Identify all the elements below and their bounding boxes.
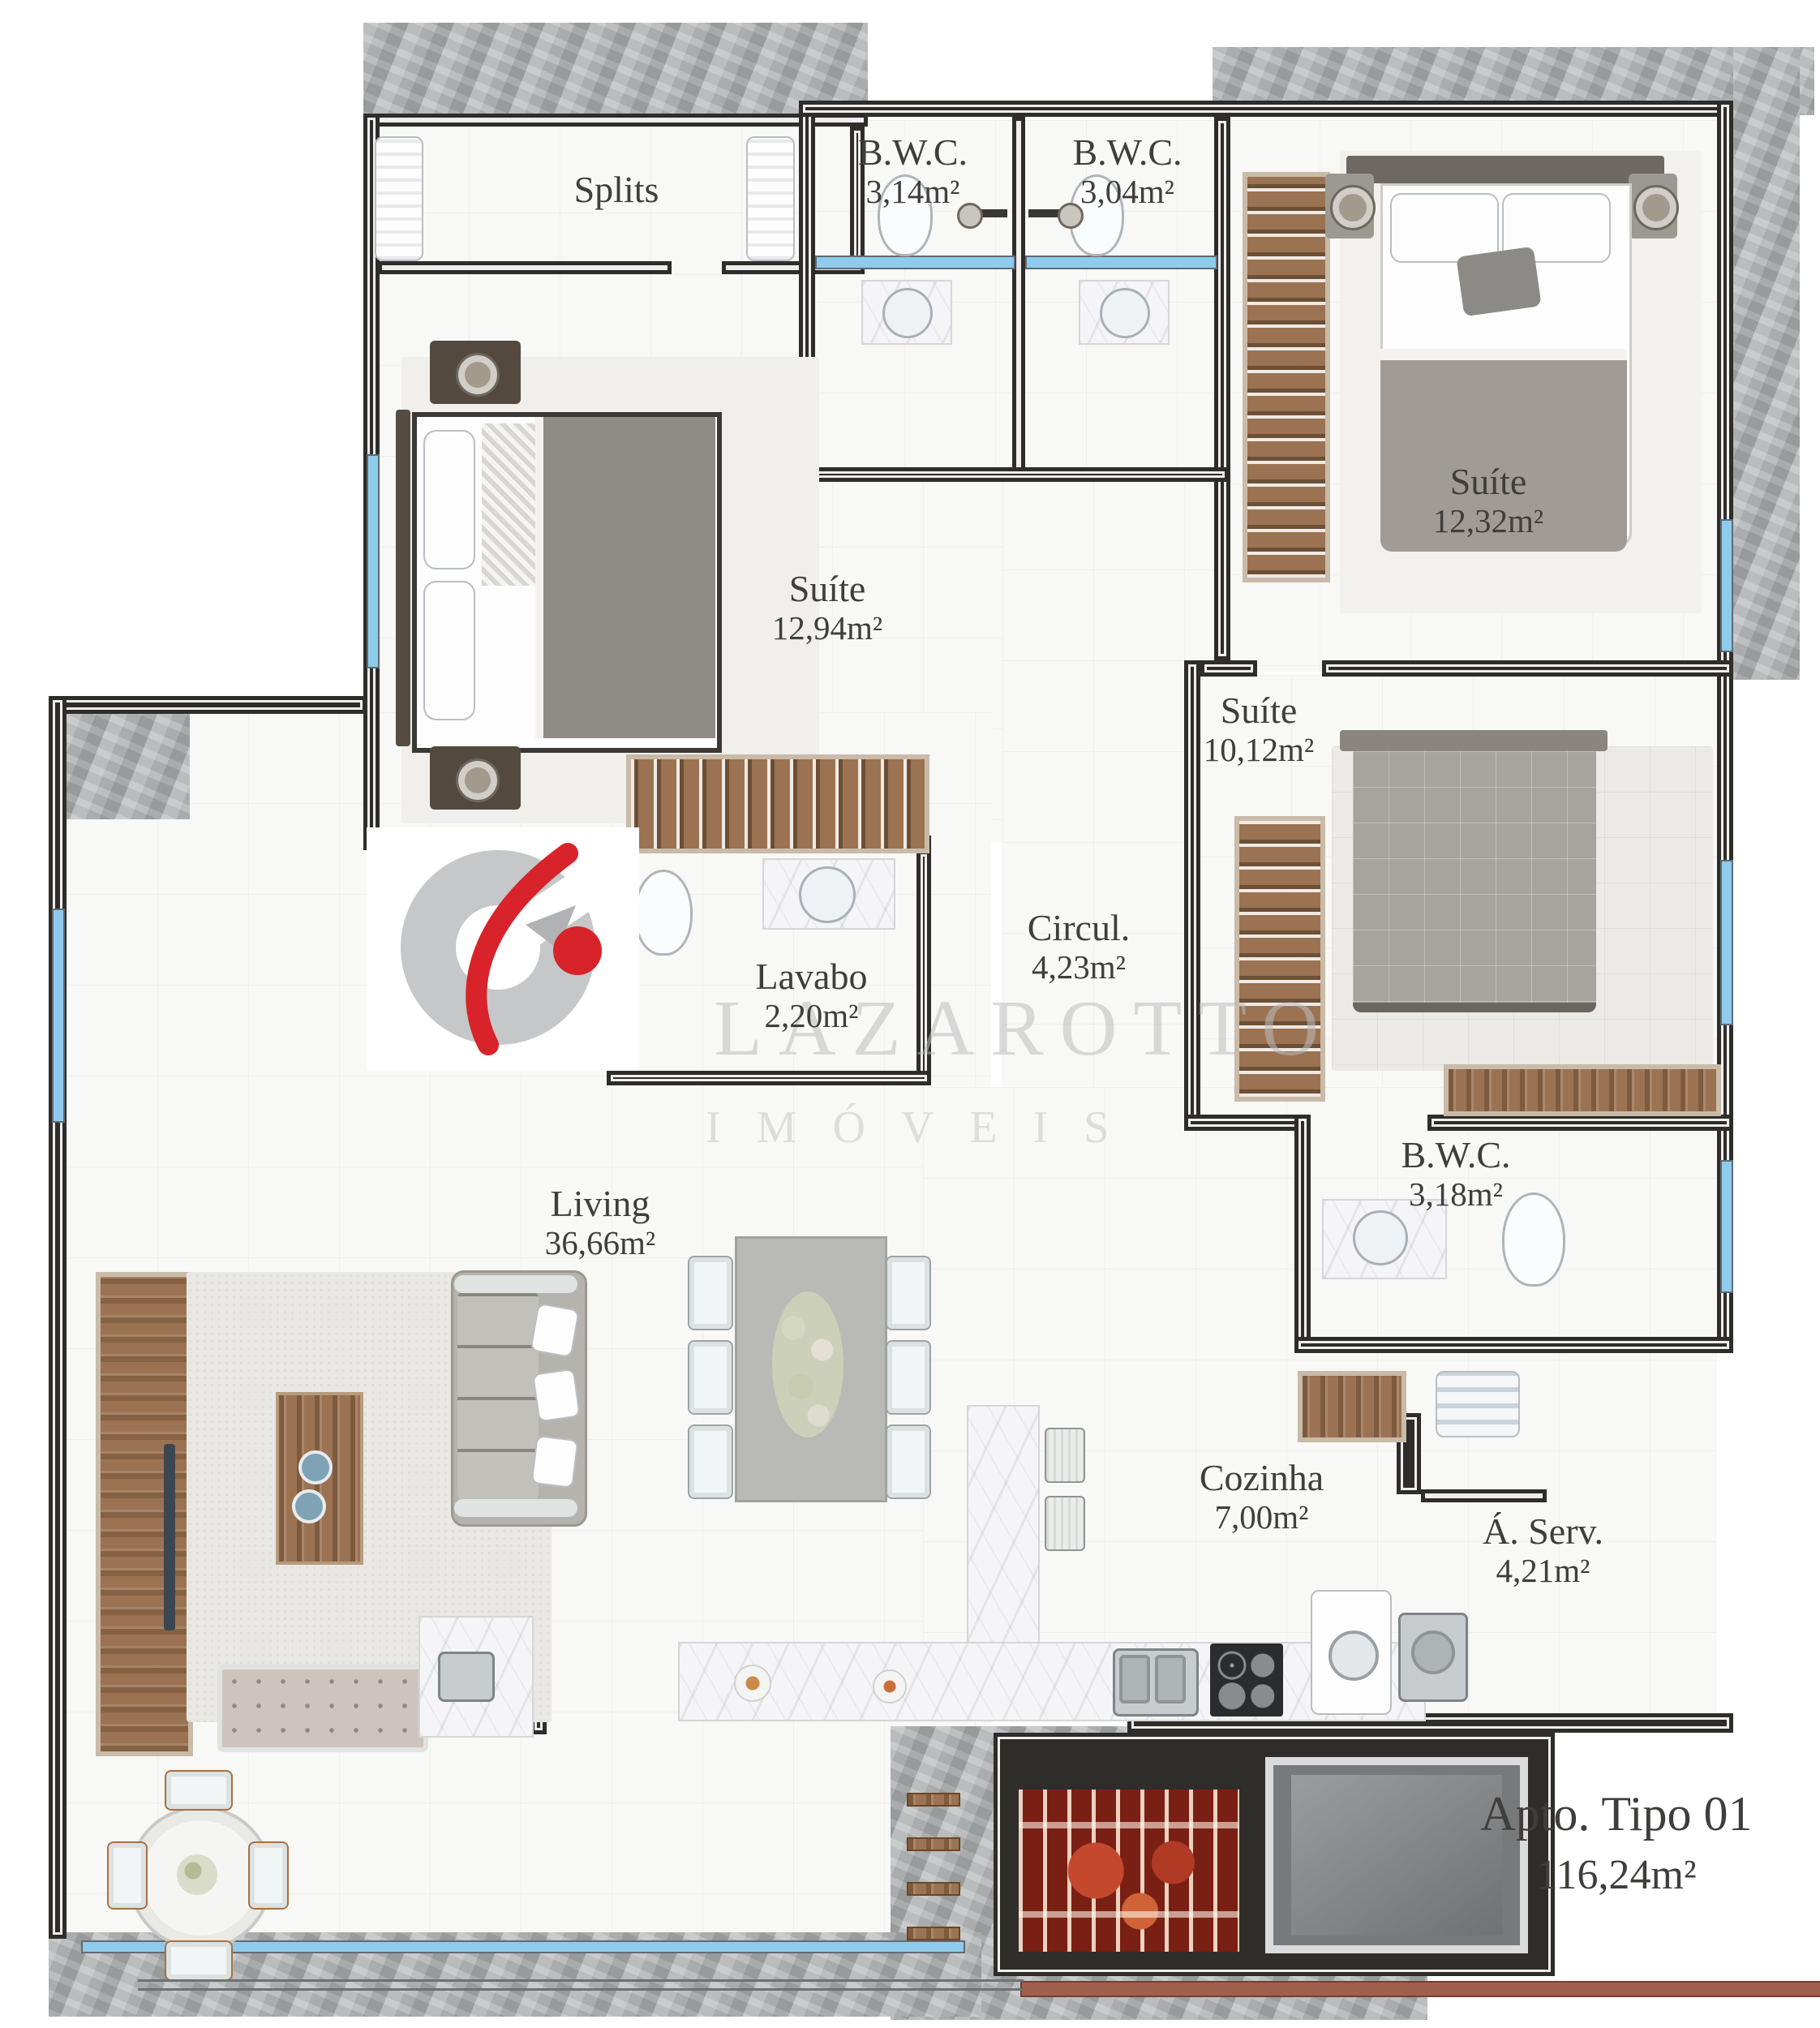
sofa-armrest [454, 1499, 577, 1517]
sofa-pillow [532, 1368, 581, 1423]
skewer-handle [907, 1882, 960, 1896]
wall [363, 114, 868, 127]
floor-plan: LAZAROTTO IMÓVEIS Splits B.W.C. 3,14m² B… [0, 0, 1820, 2028]
room-name: Lavabo [712, 956, 911, 998]
room-name: B.W.C. [1042, 131, 1213, 174]
room-name: Splits [487, 169, 746, 211]
room-area: 12,32m² [1407, 503, 1569, 540]
room-label-area-servico: Á. Serv. 4,21m² [1460, 1510, 1626, 1589]
bed-blanket [535, 417, 715, 738]
wall [1421, 1489, 1547, 1502]
table-lamp [1633, 185, 1679, 230]
washer-door [1329, 1631, 1379, 1681]
gourmet-sink [438, 1652, 495, 1702]
skewer-handle [907, 1793, 960, 1807]
ac-split-unit [375, 136, 423, 261]
room-name: Cozinha [1183, 1457, 1341, 1499]
window [367, 454, 380, 668]
table-plant [177, 1854, 217, 1895]
sofa-pillow [531, 1435, 579, 1489]
room-name: Suíte [1407, 461, 1569, 503]
dining-chair [688, 1256, 733, 1330]
sideboard [1444, 1064, 1721, 1116]
balcony-chair [165, 1940, 233, 1981]
wall [378, 261, 672, 274]
table-decor [298, 1450, 333, 1484]
sofa-armrest [454, 1275, 577, 1293]
room-label-cozinha: Cozinha 7,00m² [1183, 1457, 1341, 1536]
concrete-top-left [363, 23, 868, 118]
sink [1353, 1210, 1408, 1265]
accent-pillow [1456, 247, 1541, 317]
double-bed [1353, 751, 1596, 1012]
window [52, 909, 65, 1123]
plate-food [734, 1665, 771, 1702]
wall [1184, 1115, 1306, 1131]
room-name: B.W.C. [1379, 1134, 1533, 1176]
wall [1200, 660, 1257, 677]
pillow [1390, 193, 1499, 263]
room-area: 4,23m² [994, 949, 1164, 986]
room-name: Circul. [994, 907, 1164, 949]
tank-bowl [1411, 1631, 1455, 1674]
room-area: 36,66m² [503, 1225, 698, 1262]
room-area: 10,12m² [1178, 732, 1340, 769]
room-label-lavabo: Lavabo 2,20m² [712, 956, 911, 1034]
room-label-circulacao: Circul. 4,23m² [994, 907, 1164, 986]
apartment-area: 116,24m² [1426, 1847, 1807, 1904]
room-label-bwc-top-right: B.W.C. 3,04m² [1042, 131, 1213, 210]
wardrobe [1243, 172, 1330, 582]
kitchen-island [967, 1405, 1040, 1648]
room-area: 2,20m² [712, 998, 911, 1035]
wall [799, 101, 1733, 117]
bed-headboard [1340, 730, 1608, 751]
window [1720, 1160, 1733, 1293]
room-label-splits: Splits [487, 169, 746, 211]
window [1720, 860, 1733, 1025]
watermark-division: IMÓVEIS [706, 1102, 1111, 1154]
sink-bowl [1119, 1655, 1150, 1704]
bed-headboard [1346, 156, 1664, 183]
room-area: 4,21m² [1460, 1553, 1626, 1590]
toilet [634, 870, 693, 956]
wall [1427, 1115, 1733, 1131]
apartment-title: Apto. Tipo 01 116,24m² [1426, 1781, 1807, 1904]
g-logo-icon [367, 827, 639, 1071]
bbq-skewer-rail [1019, 1822, 1239, 1828]
sofa-pillow [530, 1303, 580, 1358]
room-label-living: Living 36,66m² [503, 1183, 698, 1261]
balcony-chair [165, 1770, 233, 1811]
room-name: Á. Serv. [1460, 1510, 1626, 1553]
sink [799, 866, 856, 923]
dining-chair [886, 1424, 931, 1499]
room-label-suite-left: Suíte 12,94m² [734, 568, 921, 647]
wall [1294, 1337, 1733, 1353]
bar-stool [1045, 1428, 1085, 1483]
shower-glass [815, 256, 1015, 269]
folded-towels [1436, 1371, 1520, 1437]
shower-glass [1025, 256, 1217, 269]
room-area: 3,18m² [1379, 1176, 1533, 1214]
wall [49, 696, 67, 1939]
dining-chair [886, 1340, 931, 1415]
skewer-handle [907, 1927, 960, 1940]
wall [1322, 660, 1733, 677]
centerpiece-flowers [772, 1291, 843, 1437]
wardrobe [626, 754, 929, 853]
window [1720, 519, 1733, 652]
wall [1294, 1115, 1311, 1353]
tv-panel [96, 1272, 193, 1756]
sink-bowl [1155, 1655, 1186, 1704]
builder-logo [367, 827, 639, 1071]
room-name: Suíte [1178, 690, 1340, 732]
balcony-chair [107, 1841, 148, 1910]
room-label-suite-mid: Suíte 10,12m² [1178, 690, 1340, 768]
skewer-handle [907, 1837, 960, 1851]
room-area: 3,14m² [818, 174, 1008, 211]
room-name: Suíte [734, 568, 921, 610]
apartment-type: Apto. Tipo 01 [1426, 1781, 1807, 1847]
pillow [423, 430, 475, 569]
concrete-right-strip [1733, 47, 1800, 680]
dining-chair [688, 1424, 733, 1499]
wall [49, 696, 367, 714]
ac-split-unit [746, 136, 795, 261]
dining-chair [886, 1256, 931, 1330]
sink [882, 288, 933, 338]
wall [1012, 117, 1025, 482]
dining-chair [688, 1340, 733, 1415]
table-lamp [456, 758, 500, 802]
cooktop [1210, 1643, 1283, 1716]
bbq-skewer-rail [1019, 1911, 1239, 1918]
room-area: 12,94m² [734, 610, 921, 647]
table-lamp [1330, 185, 1376, 230]
service-cabinet [1298, 1371, 1406, 1442]
pillow [423, 581, 475, 720]
wall [1214, 117, 1230, 660]
room-label-bwc-mid: B.W.C. 3,18m² [1379, 1134, 1533, 1213]
room-area: 3,04m² [1042, 174, 1213, 211]
wall [799, 467, 1229, 482]
sink [1100, 288, 1150, 338]
guardrail-line [138, 1979, 1024, 1991]
tv-screen [164, 1444, 175, 1631]
balcony-chair [248, 1841, 289, 1910]
room-name: B.W.C. [818, 131, 1008, 174]
room-label-bwc-top-left: B.W.C. 3,14m² [818, 131, 1008, 210]
bed-headboard [396, 410, 410, 746]
bar-stool [1045, 1496, 1085, 1551]
ottoman-bench [217, 1665, 428, 1752]
sofa-cushions [457, 1291, 539, 1501]
plate-food [873, 1669, 907, 1704]
room-name: Living [503, 1183, 698, 1225]
room-area: 7,00m² [1183, 1499, 1341, 1536]
table-lamp [456, 353, 500, 397]
concrete-living-corner [67, 714, 190, 819]
table-decor [292, 1489, 326, 1523]
bbq-grill [1019, 1790, 1239, 1952]
handrail [1020, 1981, 1820, 1997]
room-label-suite-right: Suíte 12,32m² [1407, 461, 1569, 539]
